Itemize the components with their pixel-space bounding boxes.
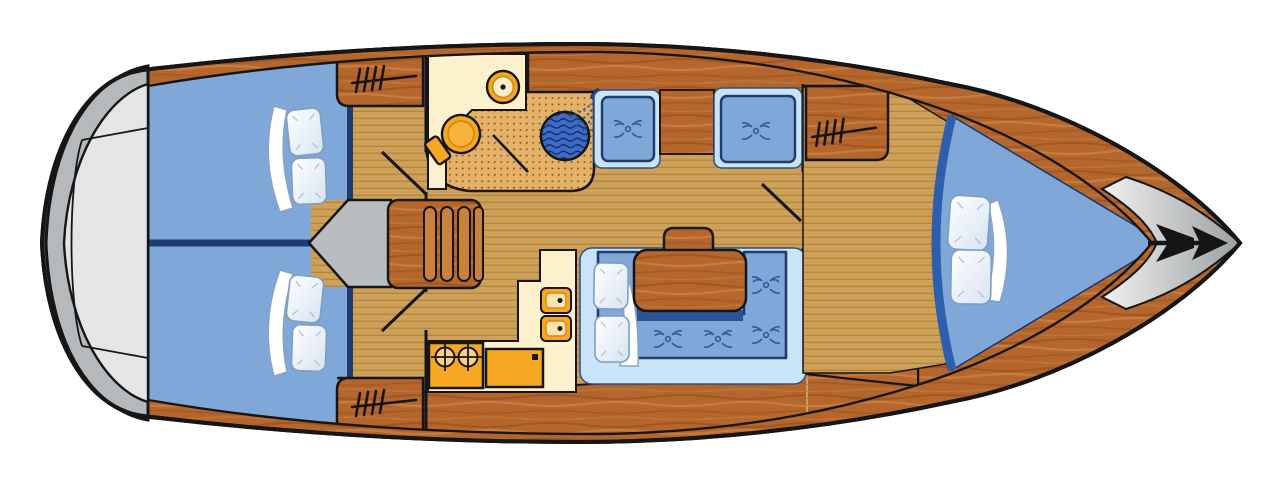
stove-icon: [429, 343, 483, 388]
pillow: [947, 195, 991, 252]
pillow: [594, 263, 629, 310]
swim-platform: [46, 66, 148, 420]
shower-icon: [541, 112, 589, 160]
salon-settee: [580, 228, 806, 384]
yacht-floor-plan: Sailing yacht interior floor plan (top v…: [0, 0, 1280, 483]
pillow: [951, 250, 992, 305]
icebox-counter: [486, 349, 543, 387]
seat-cushion: [602, 97, 654, 161]
yacht-floor-plan-canvas: Sailing yacht interior floor plan (top v…: [0, 0, 1280, 483]
pillow: [595, 316, 629, 362]
pillow: [291, 324, 327, 371]
washbasin-icon: [487, 71, 519, 103]
salon-table: [664, 228, 713, 252]
sink-icon: [541, 288, 571, 313]
pillow: [286, 274, 325, 323]
pillow: [291, 157, 327, 204]
pillow: [286, 107, 325, 156]
salon-table: [634, 250, 746, 311]
sink-icon: [541, 316, 571, 341]
cabinet-between-seats: [660, 90, 714, 154]
